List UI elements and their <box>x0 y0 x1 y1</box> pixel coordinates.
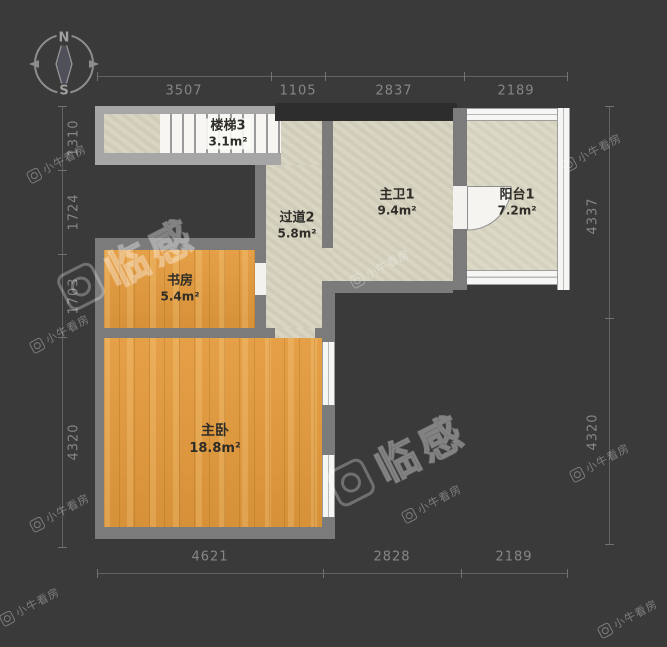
room-label-balcony: 阳台1 7.2m² <box>497 187 536 218</box>
floor-bedroom-doorway <box>275 328 315 338</box>
dim-tick <box>605 544 614 545</box>
dim-tick <box>605 318 614 319</box>
watermark-large: 临感 <box>319 398 477 519</box>
study-door-opening <box>255 263 266 295</box>
room-label-staircase: 楼梯3 3.1m² <box>205 118 250 149</box>
room-name: 楼梯3 <box>208 118 247 134</box>
dim-tick <box>464 72 465 81</box>
dim-left-3: 1703 <box>67 277 82 314</box>
dim-line-top <box>97 76 568 77</box>
camera-icon <box>28 336 46 354</box>
room-area: 18.8m² <box>189 441 240 457</box>
wall-bathroom-bottom <box>322 281 453 293</box>
watermark-small: 小牛看房 <box>0 584 62 629</box>
dim-line-right <box>609 106 610 545</box>
dim-tick <box>605 106 614 107</box>
wall-balcony-left-top <box>453 121 467 186</box>
balcony-top-window <box>467 108 557 121</box>
watermark-small-text: 小牛看房 <box>43 311 93 348</box>
wall-balcony-top-corner <box>453 108 467 121</box>
watermark-small: 小牛看房 <box>596 596 661 641</box>
watermark-small-text: 小牛看房 <box>43 490 93 527</box>
camera-icon <box>596 621 614 639</box>
dim-left-2: 1724 <box>67 193 82 230</box>
balcony-bottom-window <box>467 270 557 285</box>
dim-bottom-2: 2828 <box>373 550 410 565</box>
room-label-master-bedroom: 主卧 18.8m² <box>189 423 240 457</box>
camera-icon <box>25 166 43 184</box>
wall-hallway-left-lower <box>255 295 266 328</box>
bedroom-window-2 <box>322 455 335 517</box>
wall-balcony-bottom-corner <box>453 270 467 290</box>
dim-bottom-3: 2189 <box>495 550 532 565</box>
floor-hallway <box>265 165 322 328</box>
wall-bedroom-right-1 <box>322 281 335 342</box>
dim-top-3: 2837 <box>375 84 412 99</box>
floor-hallway-upper <box>281 121 322 165</box>
dim-tick <box>567 72 568 81</box>
dim-top-4: 2189 <box>497 84 534 99</box>
room-label-hallway: 过道2 5.8m² <box>277 210 316 241</box>
dim-top-1: 3507 <box>165 84 202 99</box>
compass-north-label: N <box>57 31 72 46</box>
wall-left-exterior <box>95 238 104 539</box>
dim-tick <box>323 569 324 578</box>
room-label-study: 书房 5.4m² <box>160 273 199 304</box>
dim-tick <box>97 569 98 578</box>
room-name: 书房 <box>160 273 199 289</box>
watermark-small: 小牛看房 <box>28 490 93 535</box>
camera-icon <box>0 609 16 627</box>
dim-tick <box>58 337 67 338</box>
room-name: 主卫1 <box>377 187 416 203</box>
watermark-small-text: 小牛看房 <box>611 596 661 633</box>
dim-tick <box>58 106 67 107</box>
watermark-small: 小牛看房 <box>400 481 465 526</box>
wall-stair-bottom <box>95 153 281 165</box>
dim-tick <box>58 170 67 171</box>
watermark-large-text: 临感 <box>364 398 477 496</box>
dim-left-4: 4320 <box>67 423 82 460</box>
camera-icon <box>400 506 418 524</box>
wall-study-top <box>95 238 266 250</box>
wall-top-exterior <box>275 103 457 121</box>
wall-stair-top <box>95 106 281 114</box>
dim-tick <box>58 254 67 255</box>
dim-tick <box>567 569 568 578</box>
wall-bedroom-bottom <box>95 527 335 539</box>
floor-stair-landing <box>104 114 161 153</box>
dim-line-bottom <box>97 573 568 574</box>
wall-study-bedroom <box>95 328 275 338</box>
watermark-small-text: 小牛看房 <box>575 130 625 167</box>
room-label-master-bath: 主卫1 9.4m² <box>377 187 416 218</box>
dim-top-2: 1105 <box>279 84 316 99</box>
room-name: 过道2 <box>277 210 316 226</box>
dim-tick <box>58 547 67 548</box>
dim-left-1: 1310 <box>67 119 82 156</box>
compass-south-label: S <box>57 84 70 99</box>
room-name: 主卧 <box>189 423 240 441</box>
dim-tick <box>325 72 326 81</box>
dim-tick <box>461 569 462 578</box>
room-name: 阳台1 <box>497 187 536 203</box>
dim-bottom-1: 4621 <box>191 550 228 565</box>
dim-tick <box>271 72 272 81</box>
dim-line-left <box>62 106 63 548</box>
balcony-door-opening <box>453 186 467 229</box>
wall-hallway-bathroom <box>322 121 333 248</box>
watermark-small-text: 小牛看房 <box>415 481 465 518</box>
watermark-small: 小牛看房 <box>28 311 93 356</box>
room-area: 9.4m² <box>377 204 416 219</box>
watermark-small-text: 小牛看房 <box>40 141 90 178</box>
floor-plan-canvas: 楼梯3 3.1m² 过道2 5.8m² 主卫1 9.4m² 阳台1 7.2m² … <box>0 0 667 647</box>
bedroom-window-1 <box>322 342 335 405</box>
camera-icon <box>568 465 586 483</box>
balcony-right-window <box>557 108 570 290</box>
camera-icon <box>28 515 46 533</box>
watermark-small-text: 小牛看房 <box>13 584 63 621</box>
floor-bathroom-doorway <box>322 248 333 281</box>
room-area: 7.2m² <box>497 204 536 219</box>
room-area: 5.4m² <box>160 290 199 305</box>
dim-right-1: 4337 <box>586 197 601 234</box>
room-area: 5.8m² <box>277 227 316 242</box>
room-area: 3.1m² <box>208 135 247 150</box>
dim-right-2: 4320 <box>586 413 601 450</box>
wall-bedroom-right-2 <box>322 405 335 455</box>
